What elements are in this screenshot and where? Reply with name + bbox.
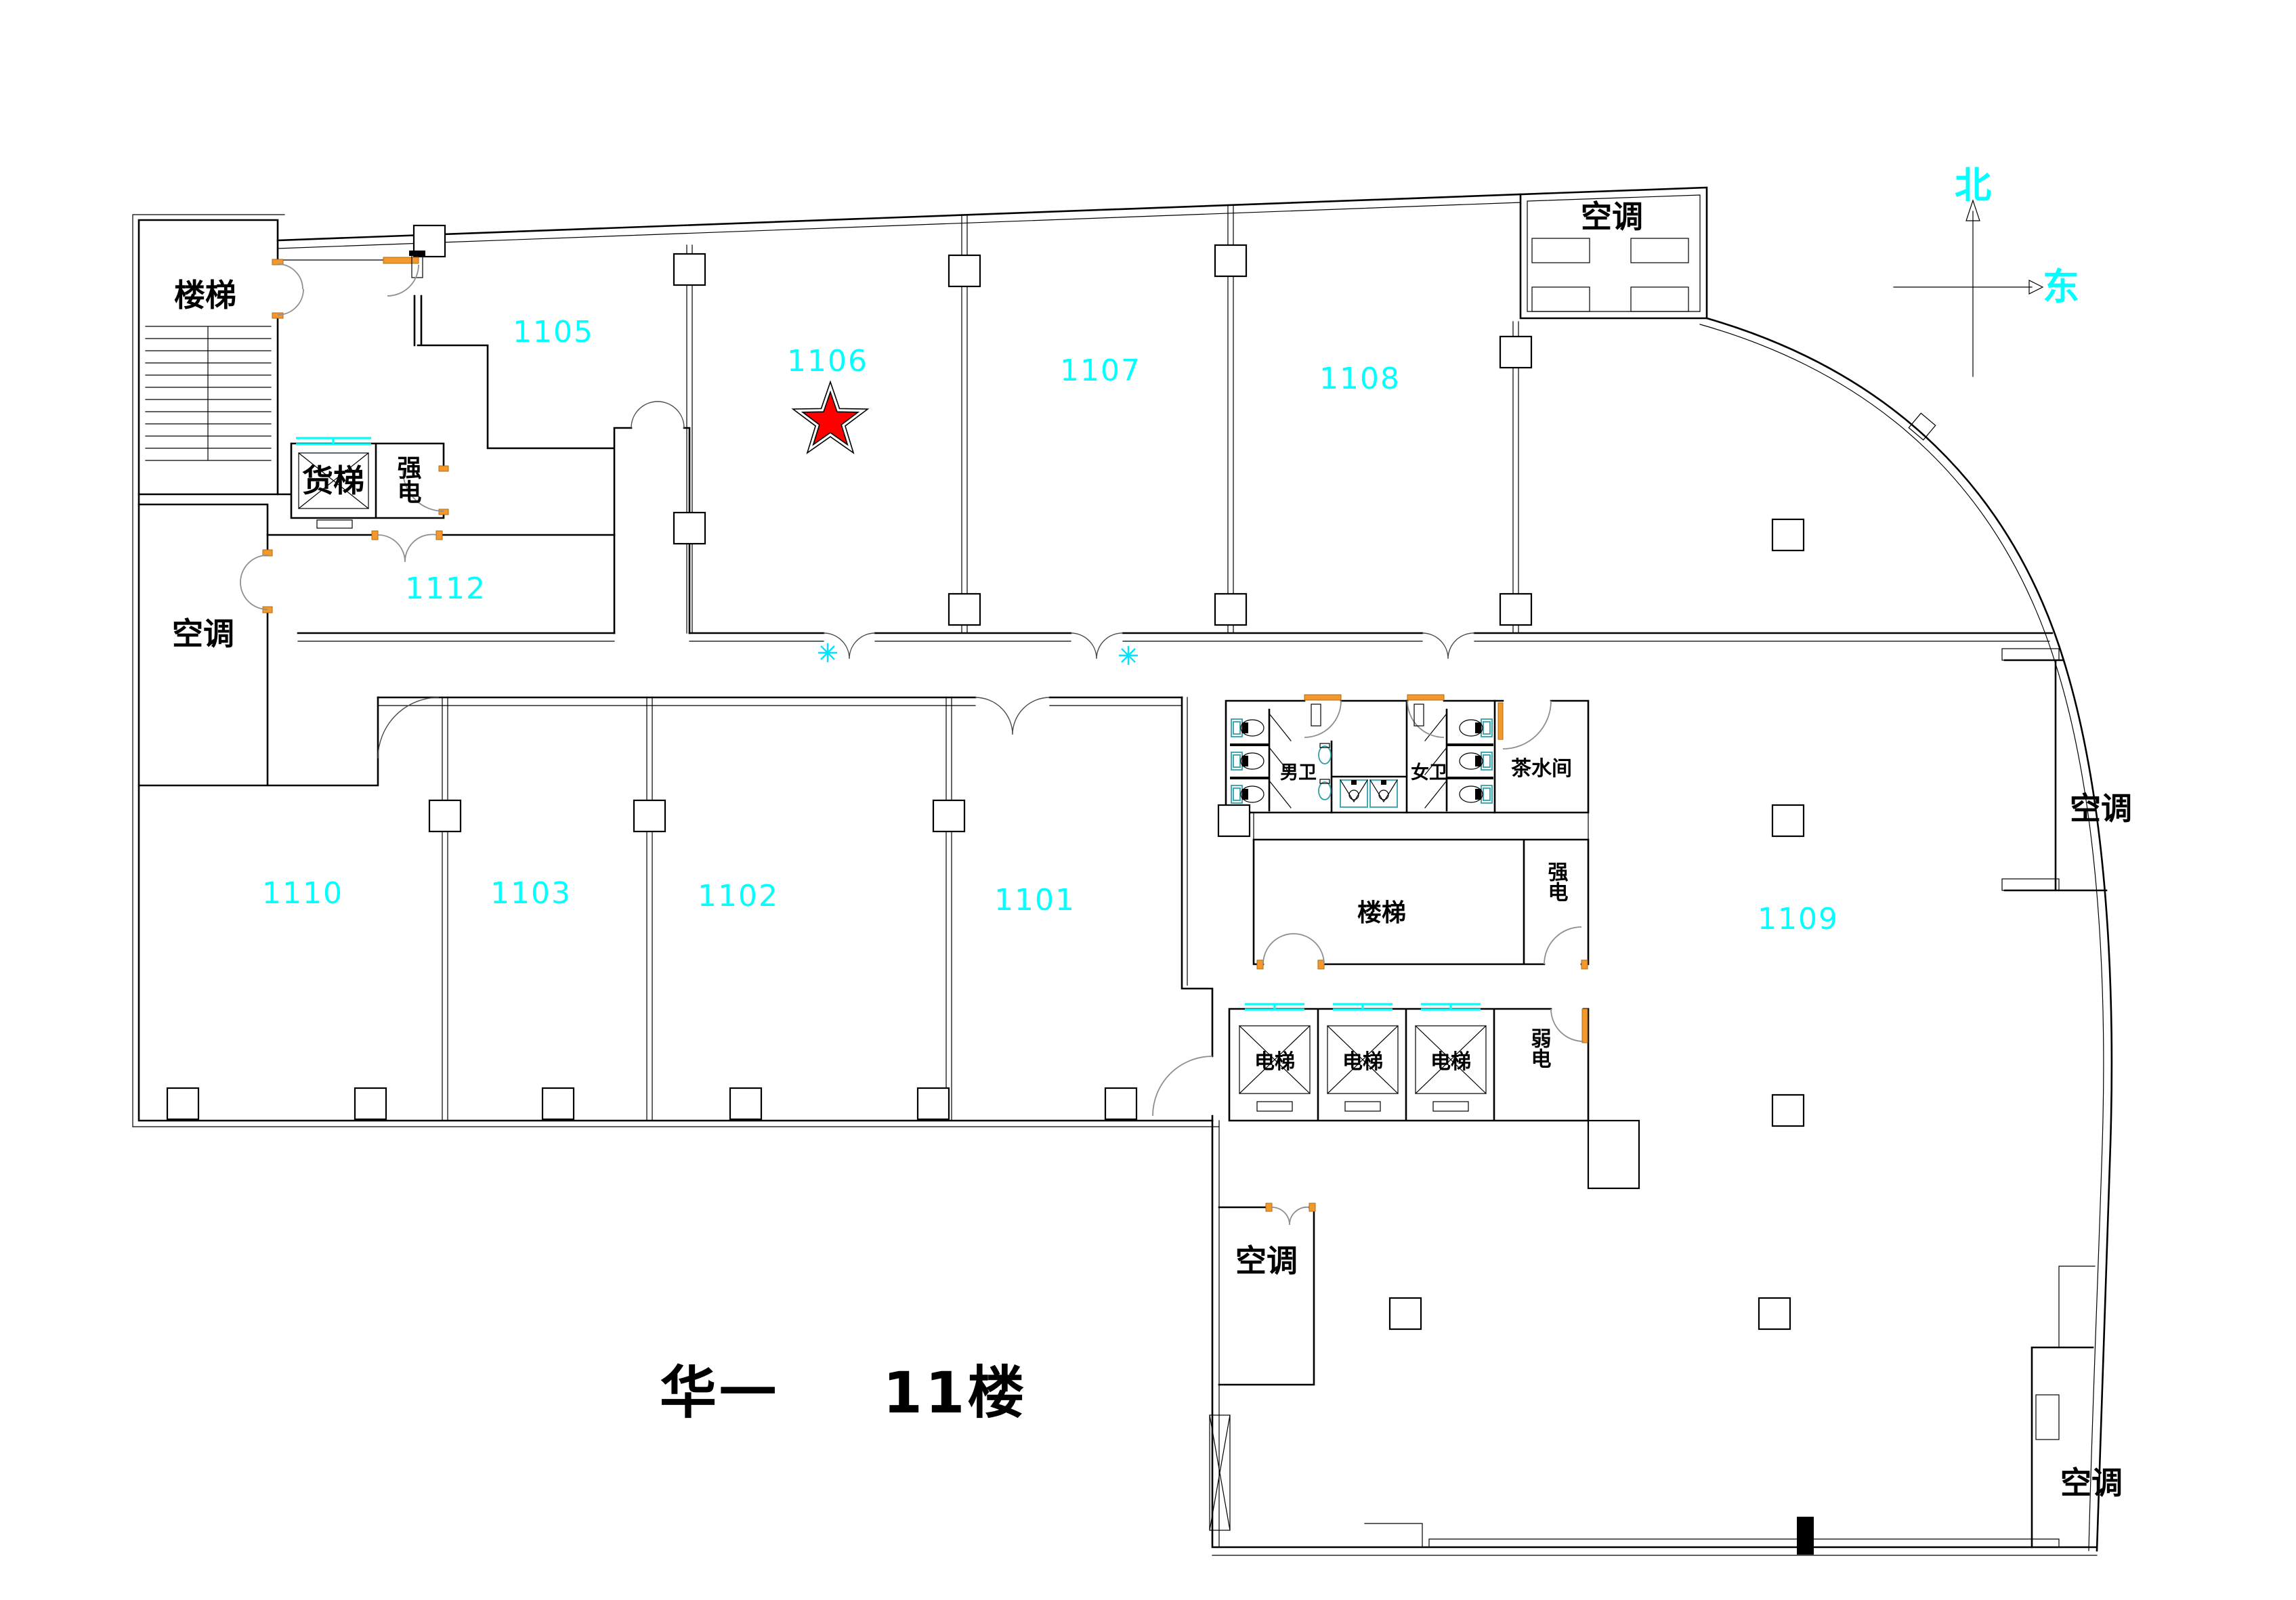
stair-treads-nw bbox=[146, 326, 271, 460]
elevator-1-label: 电梯 bbox=[1254, 1050, 1295, 1074]
star-marker-1106 bbox=[793, 382, 868, 453]
compass-north: 北 bbox=[1955, 164, 1991, 207]
ac-bottom-right-label: 空调 bbox=[2060, 1465, 2123, 1501]
room-label-1105: 1105 bbox=[513, 315, 594, 349]
ac-bottom-center-label: 空调 bbox=[1235, 1242, 1298, 1279]
room-label-1101: 1101 bbox=[994, 883, 1076, 917]
service-core-walls bbox=[1210, 649, 2106, 1547]
stairs-center-label: 楼梯 bbox=[1357, 899, 1406, 927]
room-label-1107: 1107 bbox=[1060, 353, 1141, 388]
room-label-1108: 1108 bbox=[1319, 362, 1401, 396]
ac-top-right-label: 空调 bbox=[1581, 198, 1643, 235]
interior-walls-west-wing bbox=[139, 205, 2052, 1121]
compass-east: 东 bbox=[2043, 265, 2079, 308]
room-label-1112: 1112 bbox=[405, 571, 486, 606]
power-weak-label: 弱电 bbox=[1527, 1028, 1552, 1068]
restroom-fixtures bbox=[1231, 719, 1492, 807]
south-wall-mark bbox=[1797, 1517, 1814, 1555]
elevator-2-label: 电梯 bbox=[1342, 1050, 1383, 1074]
room-label-1109: 1109 bbox=[1758, 902, 1839, 936]
stairs-nw-label: 楼梯 bbox=[174, 277, 236, 313]
ac-left-label: 空调 bbox=[172, 615, 234, 652]
tea-room-label: 茶水间 bbox=[1511, 757, 1572, 781]
floor-plan: 北 东 1105 1106 1107 1108 1112 1110 1103 1… bbox=[0, 0, 2296, 1600]
room-number-labels: 1105 1106 1107 1108 1112 1110 1103 1102 … bbox=[262, 315, 1839, 936]
mens-wc-label: 男卫 bbox=[1280, 762, 1317, 783]
room-label-1103: 1103 bbox=[490, 876, 572, 911]
room-label-1110: 1110 bbox=[262, 876, 343, 911]
power-strong-center-label: 强电 bbox=[1544, 861, 1569, 902]
power-strong-nw-label: 强电 bbox=[394, 455, 421, 504]
ac-supply-markers bbox=[818, 643, 1138, 665]
compass: 北 东 bbox=[1894, 164, 2079, 376]
room-label-1102: 1102 bbox=[698, 879, 779, 913]
title-floor: 11楼 bbox=[883, 1360, 1027, 1426]
womens-wc-label: 女卫 bbox=[1411, 762, 1447, 783]
outer-walls bbox=[133, 194, 2097, 1555]
title-building: 华一 bbox=[660, 1360, 779, 1426]
service-labels: 楼梯 货梯 强电 空调 空调 空调 空调 空调 男卫 女卫 茶水间 楼梯 强电 … bbox=[172, 198, 2132, 1501]
elevator-door-lines bbox=[296, 438, 1481, 1010]
room-label-1106: 1106 bbox=[787, 344, 868, 379]
drawing-title: 华一 11楼 bbox=[660, 1360, 1027, 1426]
freight-elevator-label: 货梯 bbox=[302, 462, 364, 499]
ac-mid-right-label: 空调 bbox=[2070, 790, 2132, 827]
elevator-3-label: 电梯 bbox=[1430, 1050, 1471, 1074]
